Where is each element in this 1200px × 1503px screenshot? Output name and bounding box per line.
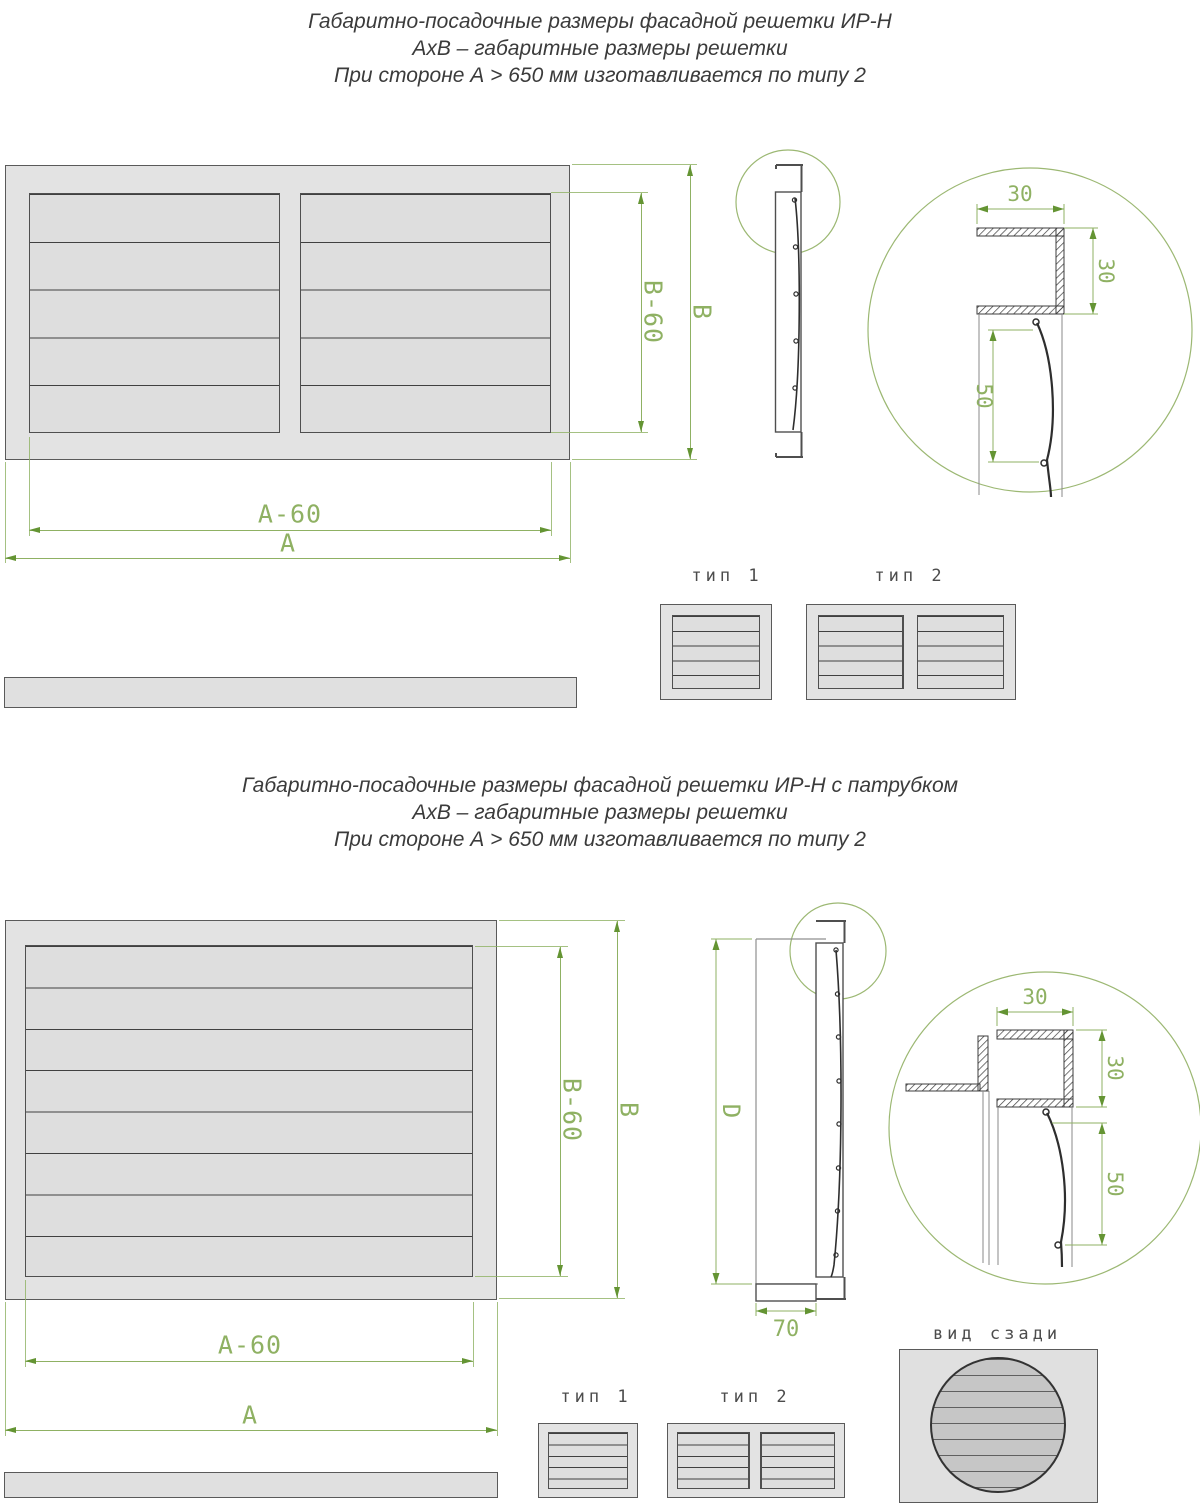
detail-louver-curve (1033, 319, 1053, 497)
top-title-line3: При стороне А > 650 мм изготавливается п… (0, 62, 1200, 89)
extension-line (572, 164, 697, 165)
dim-label-a-bottom: А (242, 1401, 258, 1430)
profile-dim-arrows (713, 939, 817, 1315)
top-title: Габаритно-посадочные размеры фасадной ре… (0, 8, 1200, 89)
detail-dim-arrows (997, 1009, 1106, 1246)
top-front-center-divider (279, 193, 301, 433)
profile-dim-lines (711, 939, 816, 1316)
extension-line (499, 920, 625, 921)
top-title-line1: Габаритно-посадочные размеры фасадной ре… (0, 8, 1200, 35)
extension-line (25, 1280, 26, 1367)
top-type2-divider (903, 615, 918, 689)
bottom-type2-louvers-left (677, 1432, 749, 1489)
dim-line-a (5, 558, 570, 559)
top-detail-view: 30 30 50 (865, 165, 1200, 500)
rear-view-duct-circle (930, 1357, 1066, 1493)
extension-line (5, 462, 6, 563)
extension-line (551, 192, 648, 193)
dim-label-a60-bottom: А-60 (218, 1331, 282, 1360)
dim-line-a60-bottom (25, 1361, 473, 1362)
extension-line (572, 459, 697, 460)
extension-line (5, 1302, 6, 1436)
bottom-title-line3: При стороне А > 650 мм изготавливается п… (0, 826, 1200, 853)
bottom-title: Габаритно-посадочные размеры фасадной ре… (0, 772, 1200, 853)
top-type1-label: тип 1 (691, 566, 762, 586)
dim-label-a: А (280, 529, 296, 558)
bottom-detail-view: 30 30 50 (885, 965, 1200, 1290)
bottom-title-line2: АхВ – габаритные размеры решетки (0, 799, 1200, 826)
duct-flange (756, 1284, 816, 1301)
detail-dim-50: 50 (1103, 1171, 1127, 1196)
extension-line (473, 1302, 474, 1367)
dim-line-a-bottom (5, 1430, 497, 1431)
extension-line (497, 1302, 498, 1436)
extension-line (570, 462, 571, 563)
top-title-line2: АхВ – габаритные размеры решетки (0, 35, 1200, 62)
bottom-grille-side-bar (4, 1472, 498, 1498)
bottom-profile-view: D 70 (700, 905, 870, 1340)
extension-line (475, 1276, 568, 1277)
detail-profile-section (906, 1030, 1073, 1267)
dim-label-b60-bottom: В-60 (558, 1078, 587, 1142)
bottom-type2-label: тип 2 (719, 1387, 790, 1407)
top-front-louvers-right (300, 193, 551, 433)
top-type2-louvers-right (917, 615, 1004, 689)
top-type2-label: тип 2 (874, 566, 945, 586)
extension-line (551, 462, 552, 536)
detail-dim-lines (977, 204, 1098, 462)
detail-dim-30-right: 30 (1094, 258, 1118, 283)
bottom-type2-louvers-right (761, 1432, 835, 1489)
extension-line (29, 437, 30, 536)
extension-line (499, 1298, 625, 1299)
bottom-type1-label: тип 1 (560, 1387, 631, 1407)
rear-view-label: вид сзади (933, 1324, 1061, 1344)
bottom-type1-louvers (548, 1432, 628, 1489)
top-profile-view (726, 140, 850, 470)
top-grille-side-bar (4, 677, 577, 708)
detail-dim-30-top: 30 (1007, 182, 1032, 206)
dim-label-a60: А-60 (258, 500, 322, 529)
top-type2-louvers-left (818, 615, 903, 689)
detail-dim-30-top: 30 (1022, 985, 1047, 1009)
extension-line (475, 946, 568, 947)
detail-louver-curve (1043, 1109, 1065, 1267)
dim-label-b-bottom: В (615, 1102, 644, 1118)
dim-label-b: В (688, 304, 717, 320)
bottom-title-line1: Габаритно-посадочные размеры фасадной ре… (0, 772, 1200, 799)
dim-label-d: D (717, 1104, 745, 1118)
extension-line (551, 432, 648, 433)
detail-dim-arrows (977, 206, 1097, 463)
detail-dim-30-right: 30 (1103, 1055, 1127, 1080)
detail-profile-section (977, 228, 1064, 497)
bottom-front-louvers (25, 945, 473, 1277)
top-front-louvers-left (29, 193, 280, 433)
top-type1-louvers (672, 615, 760, 689)
dim-label-b60: В-60 (639, 280, 668, 344)
dim-label-70: 70 (773, 1317, 800, 1342)
bottom-type2-divider (749, 1432, 761, 1489)
detail-circle (889, 972, 1200, 1284)
drawing-page: Габаритно-посадочные размеры фасадной ре… (0, 0, 1200, 1503)
detail-dim-50: 50 (972, 383, 996, 408)
